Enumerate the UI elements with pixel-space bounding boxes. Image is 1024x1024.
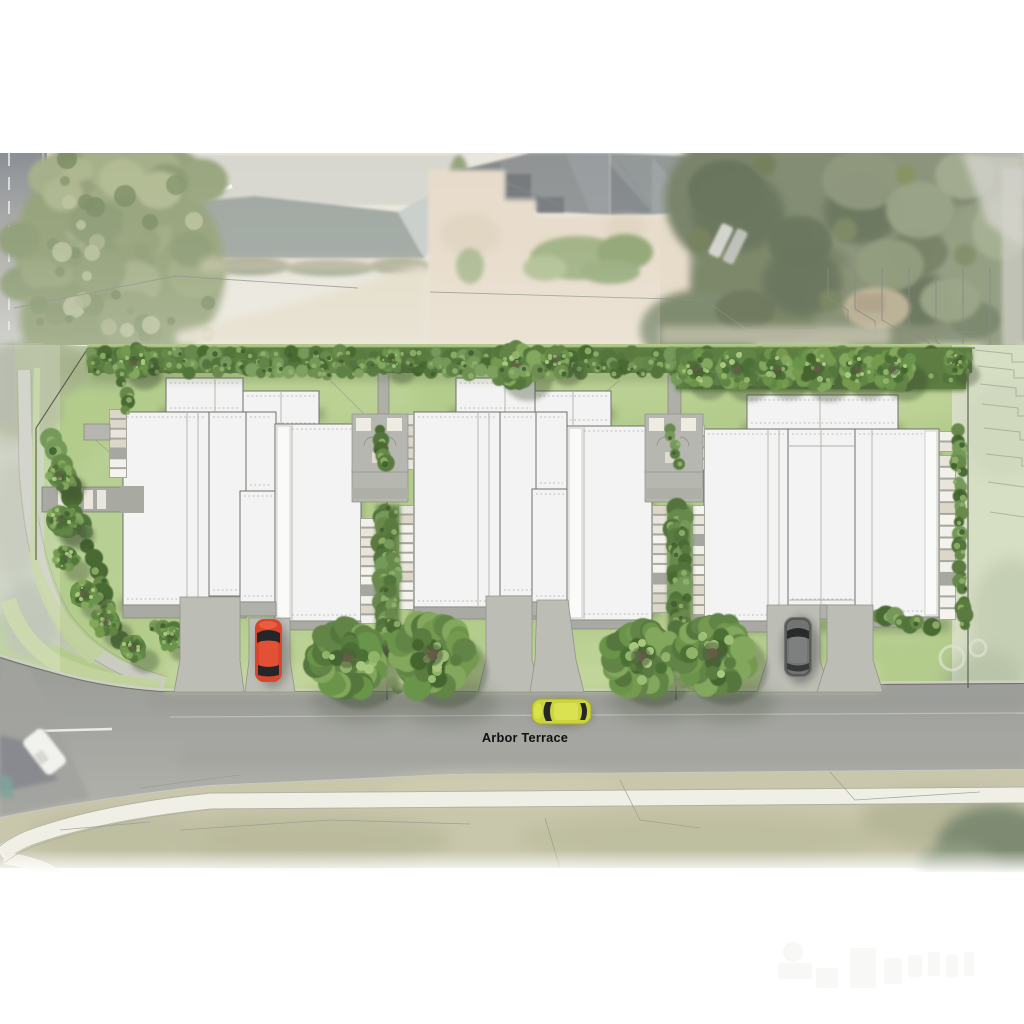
svg-text:Arbor Terrace: Arbor Terrace [482, 730, 568, 745]
